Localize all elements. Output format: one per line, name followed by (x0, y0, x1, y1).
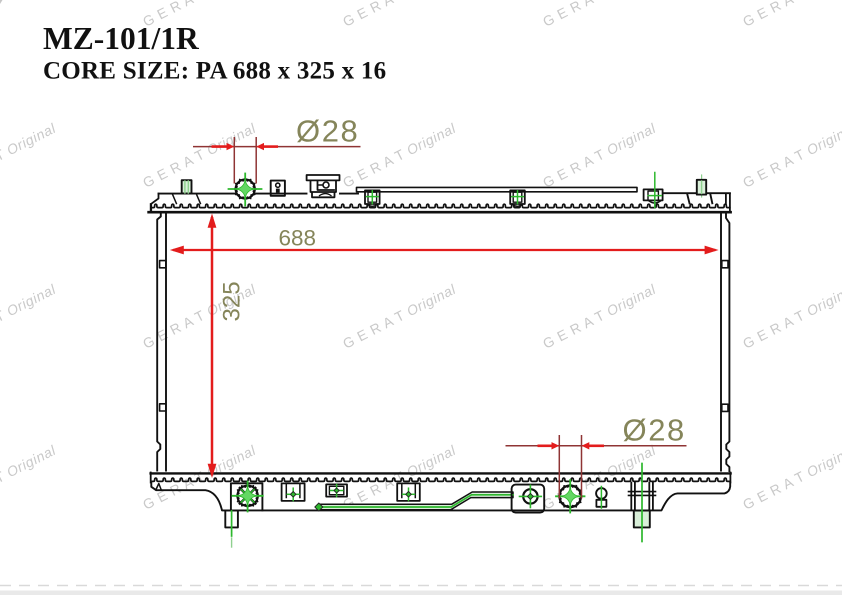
svg-text:CORE SIZE: PA 688 x 325 x 16: CORE SIZE: PA 688 x 325 x 16 (43, 58, 386, 85)
svg-text:688: 688 (279, 226, 317, 251)
svg-text:325: 325 (219, 281, 246, 321)
svg-text:MZ-101/1R: MZ-101/1R (43, 21, 200, 56)
svg-text:Ø28: Ø28 (623, 413, 686, 448)
svg-text:Ø28: Ø28 (296, 114, 359, 149)
